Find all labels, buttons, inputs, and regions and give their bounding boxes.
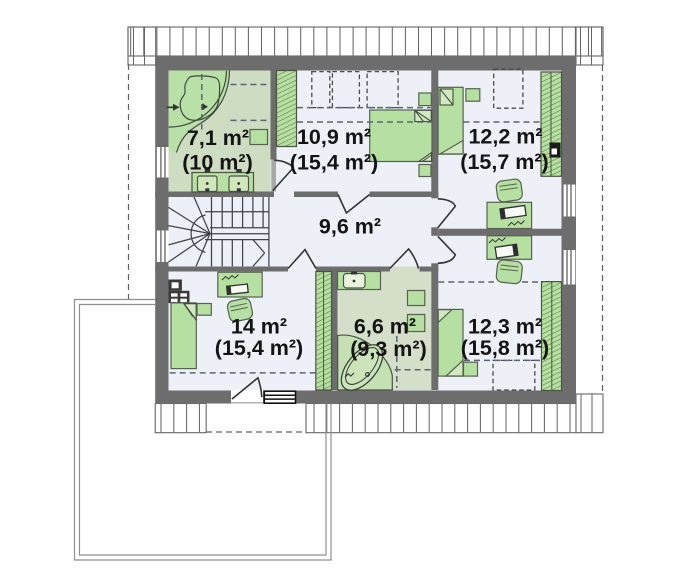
svg-text:9,6 m²: 9,6 m² (319, 215, 381, 239)
svg-text:(15,4 m²): (15,4 m²) (290, 150, 378, 174)
svg-text:10,9 m²: 10,9 m² (297, 125, 371, 149)
svg-text:12,2 m²: 12,2 m² (468, 125, 542, 149)
svg-text:6,6 m²: 6,6 m² (354, 315, 416, 339)
svg-text:(10 m²): (10 m²) (182, 150, 252, 174)
svg-text:(15,7 m²): (15,7 m²) (460, 150, 548, 174)
svg-text:7,1 m²: 7,1 m² (187, 126, 249, 150)
svg-text:12,3 m²: 12,3 m² (468, 315, 542, 339)
svg-text:(15,4 m²): (15,4 m²) (215, 336, 303, 360)
svg-text:(15,8 m²): (15,8 m²) (461, 336, 549, 360)
svg-text:14 m²: 14 m² (231, 314, 287, 338)
svg-text:(9,3 m²): (9,3 m²) (350, 337, 426, 361)
